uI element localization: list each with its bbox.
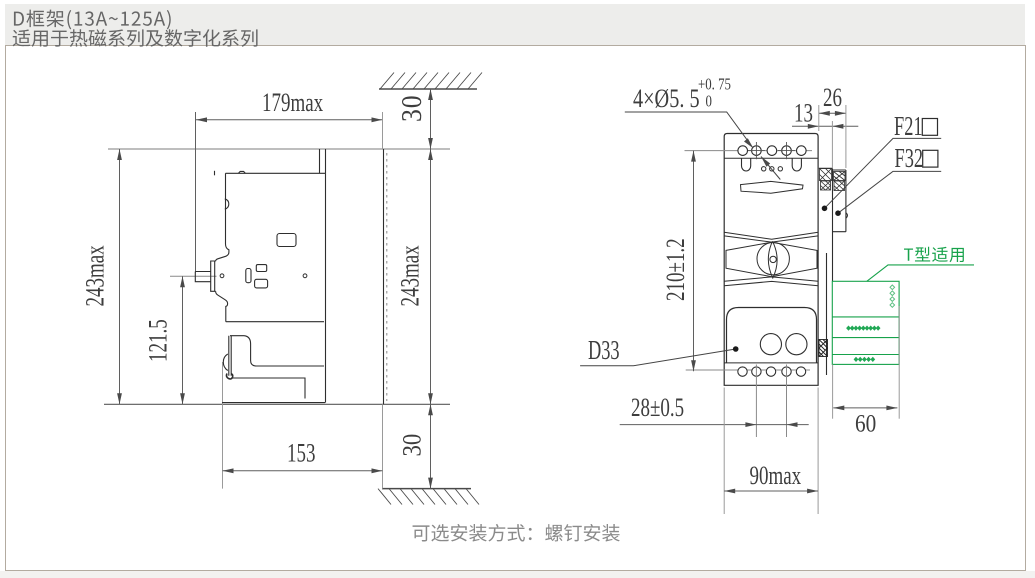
svg-text:28±0.5: 28±0.5 xyxy=(631,393,684,422)
svg-text:121.5: 121.5 xyxy=(144,319,173,362)
svg-text:179max: 179max xyxy=(262,88,324,117)
svg-text:30: 30 xyxy=(396,94,427,122)
svg-text:D33: D33 xyxy=(588,334,620,364)
svg-text:30: 30 xyxy=(398,434,427,457)
svg-text:F32: F32 xyxy=(895,142,924,172)
svg-text:F21: F21 xyxy=(894,110,923,140)
svg-text:13: 13 xyxy=(794,99,813,128)
svg-text:210±1.2: 210±1.2 xyxy=(661,238,690,301)
svg-text:4×Ø5. 5: 4×Ø5. 5 xyxy=(633,85,700,114)
svg-text:0: 0 xyxy=(706,93,712,111)
svg-text:26: 26 xyxy=(823,83,842,112)
svg-text:243max: 243max xyxy=(396,245,425,307)
svg-text:+0. 75: +0. 75 xyxy=(698,76,731,94)
svg-text:153: 153 xyxy=(287,439,315,468)
svg-text:90max: 90max xyxy=(750,461,802,490)
svg-text:60: 60 xyxy=(855,410,876,438)
svg-text:243max: 243max xyxy=(81,245,110,307)
